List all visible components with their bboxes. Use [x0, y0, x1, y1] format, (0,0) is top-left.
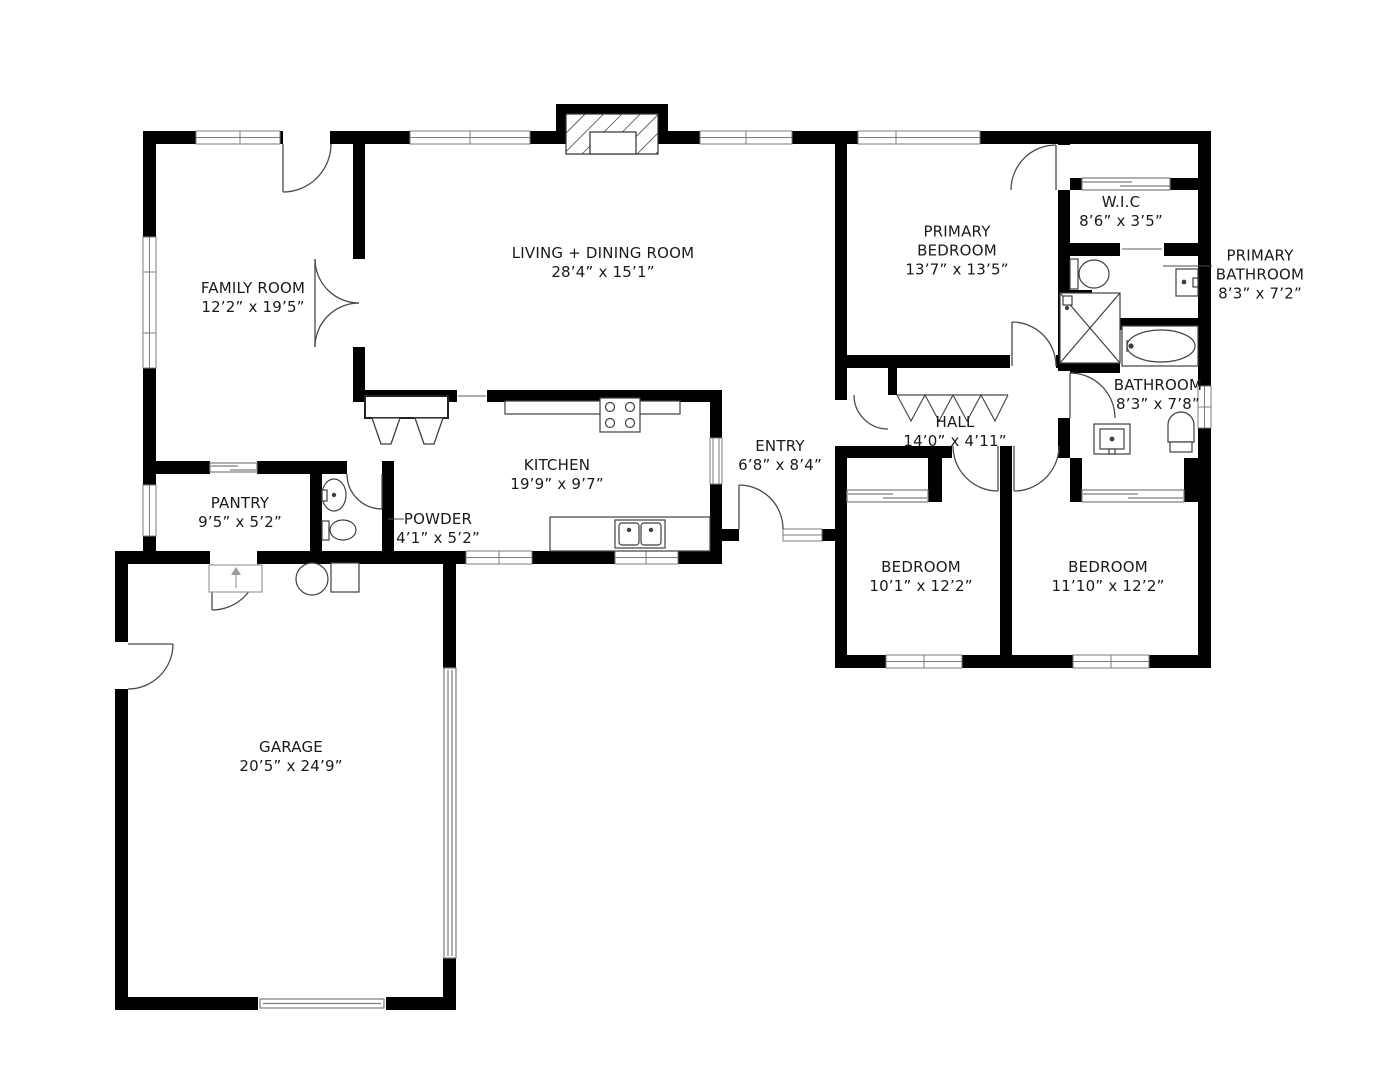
room-label-kitchen: KITCHEN 19’9” x 9’7” — [510, 456, 604, 494]
garage-steps — [209, 565, 262, 592]
floorplan-page: FAMILY ROOM 12’2” x 19’5” LIVING + DININ… — [0, 0, 1398, 1080]
bathtub — [1122, 326, 1198, 366]
room-label-bathroom: BATHROOM 8’3” x 7’8” — [1114, 376, 1202, 414]
floor-plan — [0, 0, 1398, 1080]
room-label-powder: POWDER 4’1” x 5’2” — [396, 510, 480, 548]
powder-fixtures — [322, 479, 356, 540]
room-label-entry: ENTRY 6’8” x 8’4” — [738, 437, 822, 475]
appliance — [331, 563, 359, 592]
room-label-pantry: PANTRY 9’5” x 5’2” — [198, 494, 282, 532]
room-label-hall: HALL 14’0” x 4’11” — [903, 413, 1006, 451]
room-label-wic: W.I.C 8’6” x 3’5” — [1079, 193, 1163, 231]
room-label-primary-bedroom: PRIMARY BEDROOM 13’7” x 13’5” — [902, 223, 1012, 280]
primary-sink — [1176, 269, 1198, 296]
room-label-living-dining: LIVING + DINING ROOM 28’4” x 15’1” — [512, 244, 695, 282]
shower — [1060, 293, 1120, 363]
room-label-bedroom-left: BEDROOM 10’1” x 12’2” — [869, 558, 972, 596]
bathroom-sink — [1094, 424, 1130, 454]
room-label-garage: GARAGE 20’5” x 24’9” — [239, 738, 342, 776]
fireplace — [556, 104, 668, 154]
room-label-primary-bathroom: PRIMARY BATHROOM 8’3” x 7’2” — [1205, 247, 1315, 304]
water-heater — [296, 563, 328, 595]
garage-fixtures — [209, 563, 359, 595]
room-label-bedroom-right: BEDROOM 11’10” x 12’2” — [1051, 558, 1164, 596]
primary-toilet — [1070, 259, 1109, 289]
kitchen-sink — [615, 520, 665, 548]
kitchen-upper-counter — [505, 401, 680, 414]
powder-sink — [322, 479, 346, 511]
stove — [600, 398, 640, 432]
dining-table — [365, 396, 448, 444]
bathroom-toilet — [1168, 412, 1194, 452]
room-label-family-room: FAMILY ROOM 12’2” x 19’5” — [201, 279, 305, 317]
powder-toilet — [322, 520, 356, 540]
